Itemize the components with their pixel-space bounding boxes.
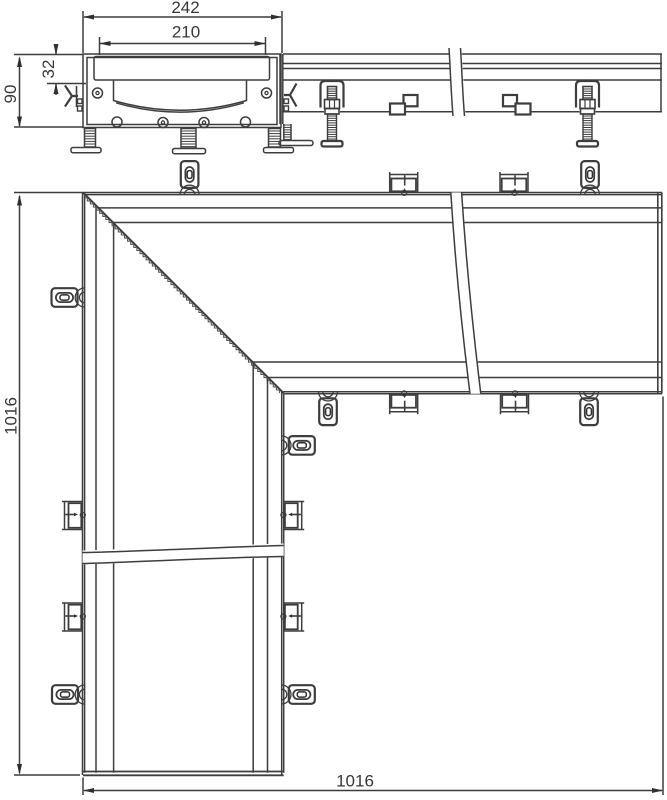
svg-text:242: 242	[171, 0, 199, 17]
svg-text:210: 210	[172, 23, 200, 42]
svg-text:90: 90	[1, 85, 20, 104]
svg-text:1016: 1016	[2, 397, 21, 435]
svg-text:1016: 1016	[336, 772, 374, 791]
svg-text:32: 32	[39, 60, 58, 79]
